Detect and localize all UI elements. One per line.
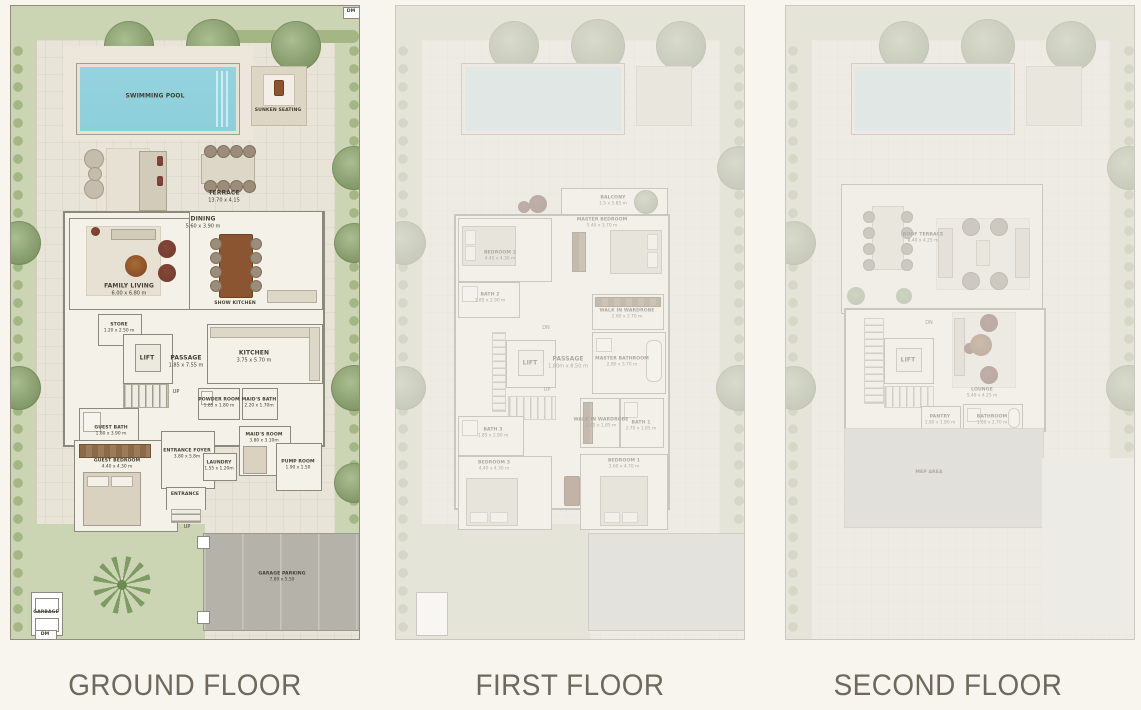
site-ground: SWIMMING POOL SUNKEN SEATING TERRACE13. <box>10 5 360 640</box>
hedge-icon <box>732 42 745 524</box>
maids-room-label: MAID'S ROOM3.80 x 3.10m <box>246 432 283 443</box>
armchair-icon <box>962 272 980 290</box>
chair-icon <box>901 259 913 271</box>
coffee-table-icon <box>125 255 147 277</box>
swimming-pool-ghost <box>852 64 1014 134</box>
family-living-label: FAMILY LIVING6.00 x 6.80 m <box>104 282 154 296</box>
bathroom-label: BATHROOM1.80 x 2.70 m <box>977 414 1008 425</box>
plant-pot-icon <box>529 195 547 213</box>
kitchen-counter <box>309 327 320 381</box>
first-floor-title: FIRST FLOOR <box>407 669 733 703</box>
guest-bedroom-label: GUEST BEDROOM4.40 x 4.30 m <box>94 458 140 469</box>
roof-terrace-label: ROOF TERRACE8.40 x 4.25 m <box>903 232 944 243</box>
garage-marker <box>197 611 210 624</box>
dining-table-icon <box>872 206 904 270</box>
tree-icon <box>1046 21 1096 71</box>
lounge-chair-icon <box>84 149 104 169</box>
chair-icon <box>210 238 222 250</box>
laundry-label: LAUNDRY1.55 x 1.20m <box>204 460 233 471</box>
sink-icon <box>596 338 612 352</box>
dm-top-label: DM <box>347 9 356 15</box>
dn-label: DN <box>925 320 933 326</box>
sunken-seating-label: SUNKEN SEATING <box>255 108 302 114</box>
garbage-label: GARBAGE <box>33 610 59 616</box>
bath3-label: BATH 31.85 x 2.90 m <box>478 427 509 438</box>
second-floor-title: SECOND FLOOR <box>785 669 1111 703</box>
chair-icon <box>863 259 875 271</box>
up-label: UP <box>173 389 180 395</box>
kitchen-label: KITCHEN3.75 x 5.70 m <box>237 349 272 363</box>
armchair-icon <box>962 218 980 236</box>
master-bedroom-label: MASTER BEDROOM5.40 x 3.70 m <box>577 217 628 228</box>
stairs-icon <box>884 386 934 408</box>
hedge-icon <box>396 42 410 636</box>
bedroom2-label: BEDROOM 24.40 x 4.30 m <box>484 250 516 261</box>
lift-label: LIFT <box>140 354 155 362</box>
garbage-ghost <box>416 592 448 636</box>
chair-icon <box>901 211 913 223</box>
wardrobe-icon <box>595 297 661 307</box>
show-kitchen-label: SHOW KITCHEN <box>214 301 256 307</box>
chair-icon <box>901 243 913 255</box>
hedge-icon <box>1122 42 1135 524</box>
show-kitchen-counter <box>267 290 317 303</box>
pillow-icon <box>465 230 476 245</box>
tree-icon <box>634 190 658 214</box>
pillow-icon <box>647 252 658 268</box>
floorplan-sheet: SWIMMING POOL SUNKEN SEATING TERRACE13. <box>0 0 1141 710</box>
first-floor-plan: BALCONY1.5 x 5.85 m BEDROOM 24.40 x 4.30… <box>395 5 745 640</box>
chair-icon <box>250 280 262 292</box>
sink-icon <box>624 402 638 418</box>
chair-icon <box>243 180 256 193</box>
chair-icon <box>243 145 256 158</box>
pillow-icon <box>465 246 476 261</box>
stairs-icon <box>864 318 884 404</box>
bedroom1-label: BEDROOM 13.60 x 4.70 m <box>608 458 640 469</box>
pump-room-label: PUMP ROOM1.90 x 1.50 <box>281 459 314 470</box>
balcony-label: BALCONY1.5 x 5.85 m <box>599 195 627 206</box>
armchair-icon <box>980 366 998 384</box>
wardrobe-icon <box>79 444 151 458</box>
walk-in-wardrobe1-label: WALK IN WARDROBE2.60 x 3.70 m <box>599 308 654 319</box>
guest-bath-label: GUEST BATH1.80 x 3.90 m <box>94 425 127 436</box>
store-label: STORE1.20 x 2.50 m <box>104 322 135 333</box>
up-label: UP <box>544 387 551 393</box>
powder-room-label: POWDER ROOM1.85 x 1.80 m <box>198 397 239 408</box>
ground-floor-title: GROUND FLOOR <box>22 669 348 703</box>
cushion-icon <box>157 176 163 186</box>
plant-icon <box>896 288 912 304</box>
tree-icon <box>271 21 321 71</box>
coffee-table-icon <box>970 334 992 356</box>
chair-icon <box>250 238 262 250</box>
pale-roof-area <box>1042 458 1135 633</box>
pillow-icon <box>647 234 658 250</box>
dm-bottom-label: DM <box>41 632 50 638</box>
lift-label: LIFT <box>901 356 916 364</box>
mep-area <box>844 428 1044 528</box>
entrance-room <box>166 487 206 510</box>
passage-label: PASSAGE1.85 x 7.55 m <box>169 354 204 368</box>
pantry-label: PANTRY1.80 x 1.80 m <box>925 414 956 425</box>
pillow-icon <box>470 512 488 523</box>
armchair-icon <box>990 218 1008 236</box>
armchair-icon <box>990 272 1008 290</box>
chair-icon <box>250 252 262 264</box>
site-second: ROOF TERRACE8.40 x 4.25 m DN LIFT <box>785 5 1135 640</box>
chair-icon <box>250 266 262 278</box>
armchair-icon <box>980 314 998 332</box>
bathtub-icon <box>1008 408 1020 428</box>
site-first: BALCONY1.5 x 5.85 m BEDROOM 24.40 x 4.30… <box>395 5 745 640</box>
chair-icon <box>210 280 222 292</box>
chair-icon <box>210 252 222 264</box>
pillow-icon <box>111 476 133 487</box>
lounge-label: LOUNGE5.40 x 4.25 m <box>967 387 998 398</box>
entrance-steps-icon <box>171 509 201 523</box>
passage-label: PASSAGE1.80m x 8.50 m <box>548 355 588 369</box>
wardrobe-icon <box>572 232 586 272</box>
entrance-label: ENTRANCE <box>171 492 199 498</box>
bath2-label: BATH 21.85 x 2.90 m <box>475 292 506 303</box>
pillow-icon <box>490 512 508 523</box>
chair-icon <box>863 243 875 255</box>
cushion-icon <box>157 156 163 166</box>
maids-bath-label: MAID'S BATH2.20 x 1.70m <box>242 397 277 408</box>
chair-icon <box>230 145 243 158</box>
armchair-icon <box>158 240 176 258</box>
armchair-icon <box>158 264 176 282</box>
sunken-seating-ghost <box>1026 66 1082 126</box>
bedroom3-label: BEDROOM 34.40 x 4.30 m <box>478 460 510 471</box>
coffee-table-icon <box>976 240 990 266</box>
mep-area-label: MEP AREA <box>915 470 942 476</box>
garage-marker <box>197 536 210 549</box>
stairs-icon <box>492 332 506 412</box>
garage-ghost <box>588 533 745 631</box>
hedge-icon <box>347 42 360 524</box>
sofa-icon <box>111 229 156 240</box>
side-table-icon <box>88 167 102 181</box>
chair-icon <box>863 211 875 223</box>
walk-in-wardrobe2-label: WALK IN WARDROBE3.05 x 1.85 m <box>573 417 628 428</box>
pillow-icon <box>87 476 109 487</box>
pillow-icon <box>604 512 620 523</box>
sofa-icon <box>1015 228 1030 278</box>
console-icon <box>564 476 580 506</box>
palm-tree-icon <box>93 556 151 614</box>
dn-label: DN <box>542 325 550 331</box>
pool-steps <box>216 71 230 127</box>
terrace-label: TERRACE13.70 x 4.15 <box>208 189 240 203</box>
ground-floor-plan: SWIMMING POOL SUNKEN SEATING TERRACE13. <box>10 5 360 640</box>
bed-icon <box>243 446 267 474</box>
dining-label: DINING5.60 x 3.90 m <box>186 215 221 229</box>
bath1-label: BATH 12.70 x 1.85 m <box>626 420 657 431</box>
pillow-icon <box>622 512 638 523</box>
swimming-pool-ghost <box>462 64 624 134</box>
kitchen-counter <box>210 327 319 338</box>
hedge-icon <box>786 42 800 636</box>
chair-icon <box>204 145 217 158</box>
garage-parking-label: GARAGE PARKING7.80 x 5.50 <box>258 571 305 582</box>
stairs-icon <box>123 384 169 408</box>
dining-table-icon <box>219 234 253 298</box>
swimming-pool-label: SWIMMING POOL <box>125 92 184 100</box>
entrance-foyer-label: ENTRANCE FOYER3.80 x 5.8m <box>163 448 210 459</box>
chair-icon <box>217 145 230 158</box>
sink-icon <box>462 420 478 436</box>
sunken-seating-ghost <box>636 66 692 126</box>
second-floor-plan: ROOF TERRACE8.40 x 4.25 m DN LIFT <box>785 5 1135 640</box>
lounge-chair-icon <box>84 179 104 199</box>
plant-icon <box>847 287 865 305</box>
lift-label: LIFT <box>523 359 538 367</box>
fire-pit-icon <box>274 80 284 96</box>
up-entrance-label: UP <box>184 524 191 530</box>
tree-icon <box>656 21 706 71</box>
hedge-icon <box>11 42 25 636</box>
chair-icon <box>210 266 222 278</box>
master-bathroom-label: MASTER BATHROOM2.80 x 3.70 m <box>595 356 649 367</box>
plant-pot-icon <box>91 227 100 236</box>
chair-icon <box>863 227 875 239</box>
